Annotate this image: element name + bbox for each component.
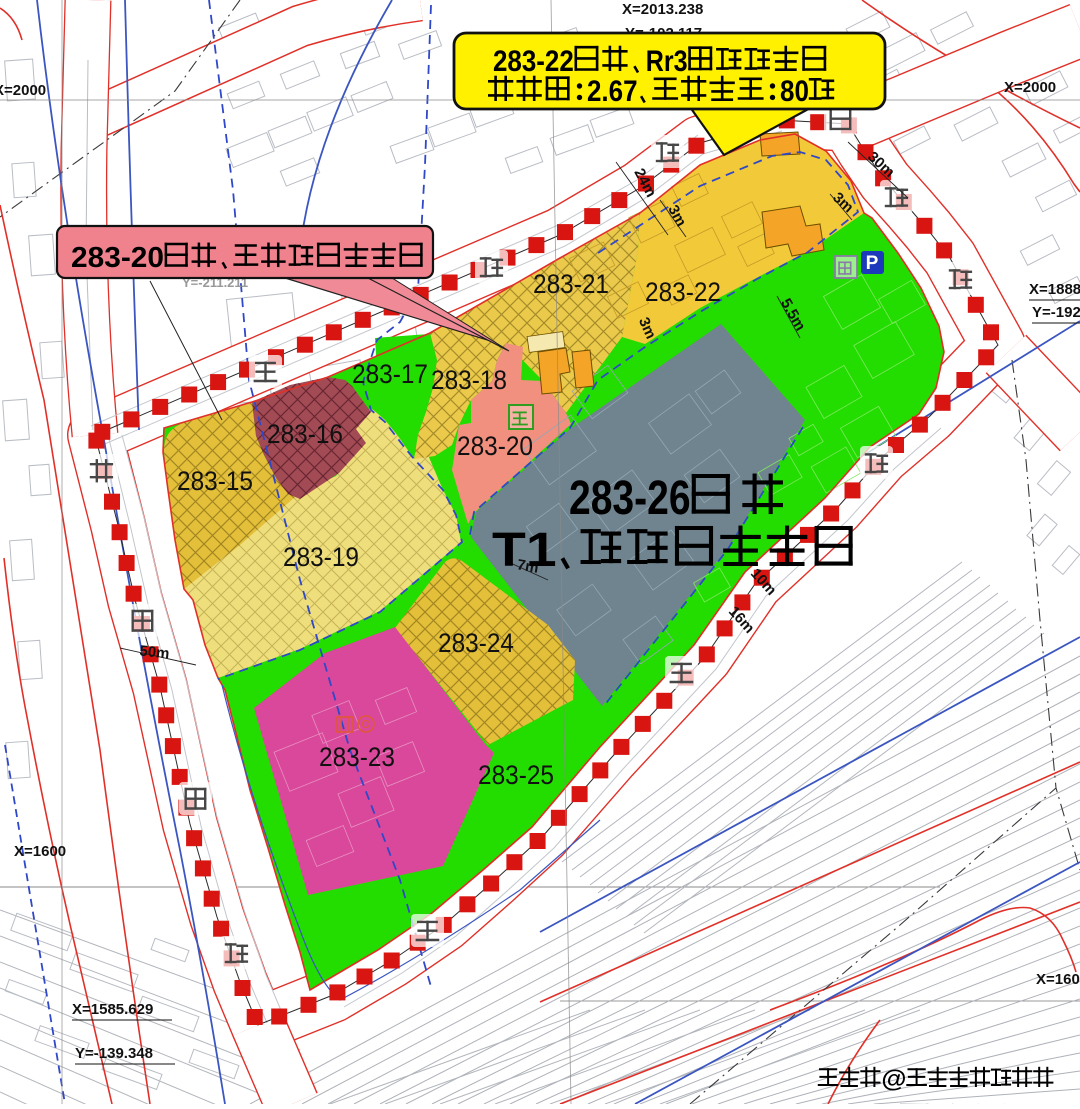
svg-text:283-17: 283-17 [352,359,428,389]
svg-text:283-20: 283-20 [71,242,164,274]
svg-text:X=160: X=160 [1036,971,1080,988]
svg-text:50m: 50m [139,643,171,663]
svg-text:283-20: 283-20 [457,431,533,461]
svg-text:X=1585.629: X=1585.629 [72,1001,153,1018]
svg-text:283-19: 283-19 [283,542,359,572]
svg-text:X=1888.: X=1888. [1029,281,1080,298]
svg-text:X=2000: X=2000 [1004,79,1056,96]
svg-text:283-23: 283-23 [319,742,395,772]
svg-text:283-18: 283-18 [431,365,507,395]
svg-text:T1: T1 [492,524,557,577]
svg-text:283-25: 283-25 [478,760,554,790]
svg-text:X=2000: X=2000 [0,82,46,99]
svg-text:Y=-139.348: Y=-139.348 [75,1045,153,1062]
svg-text:283-26: 283-26 [569,472,691,525]
svg-text:283-16: 283-16 [267,419,343,449]
svg-text:283-24: 283-24 [438,628,514,658]
svg-text:X=2013.238: X=2013.238 [622,1,703,18]
svg-text:283-22: 283-22 [493,45,574,78]
svg-text:@: @ [881,1066,906,1093]
svg-text:80: 80 [780,75,809,108]
svg-text:283-22: 283-22 [645,277,721,307]
svg-text:P: P [866,253,879,274]
svg-text:Rr3: Rr3 [646,45,688,78]
svg-text:2.67: 2.67 [587,75,638,108]
svg-text:283-21: 283-21 [533,269,609,299]
svg-text:Y=-192.: Y=-192. [1032,304,1080,321]
svg-text:X=1600: X=1600 [14,843,66,860]
svg-text:283-15: 283-15 [177,466,253,496]
